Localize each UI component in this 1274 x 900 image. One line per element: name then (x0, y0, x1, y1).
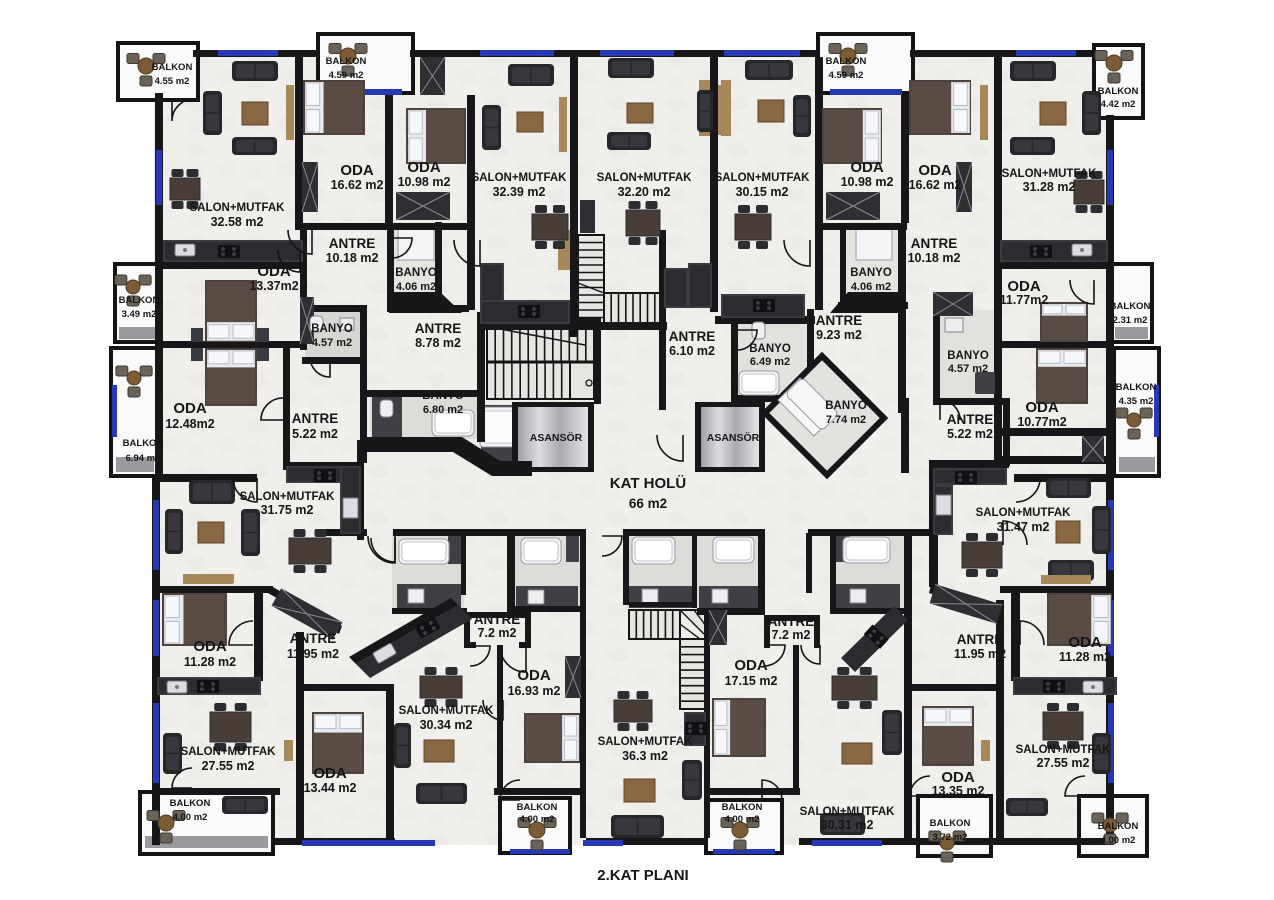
svg-text:6.10 m2: 6.10 m2 (669, 344, 715, 358)
svg-text:SALON+MUTFAK: SALON+MUTFAK (976, 507, 1072, 519)
svg-text:31.75 m2: 31.75 m2 (261, 503, 314, 517)
svg-text:BALKON: BALKON (119, 295, 160, 306)
svg-text:4.59 m2: 4.59 m2 (329, 70, 364, 81)
svg-text:10.18 m2: 10.18 m2 (908, 251, 961, 265)
svg-text:ANTRE: ANTRE (474, 612, 521, 627)
svg-text:ANTRE: ANTRE (957, 632, 1004, 647)
svg-text:11.95 m2: 11.95 m2 (954, 647, 1006, 661)
svg-text:SALON+MUTFAK: SALON+MUTFAK (597, 172, 693, 184)
svg-text:BALKON: BALKON (517, 802, 558, 813)
svg-text:6.94 m2: 6.94 m2 (126, 453, 161, 464)
svg-text:ODA: ODA (850, 159, 884, 176)
svg-text:ANTRE: ANTRE (768, 614, 815, 629)
svg-text:9.23 m2: 9.23 m2 (816, 328, 862, 342)
svg-text:4.57 m2: 4.57 m2 (948, 363, 988, 375)
svg-text:13.44 m2: 13.44 m2 (304, 781, 357, 795)
svg-text:66 m2: 66 m2 (629, 496, 667, 511)
svg-text:8.78 m2: 8.78 m2 (415, 336, 461, 350)
svg-text:ODA: ODA (1068, 634, 1102, 651)
svg-text:30.15 m2: 30.15 m2 (736, 185, 789, 199)
svg-text:4.00 m2: 4.00 m2 (725, 814, 760, 825)
svg-text:16.93 m2: 16.93 m2 (508, 684, 561, 698)
svg-text:11.28 m2: 11.28 m2 (1059, 650, 1111, 664)
svg-text:10.98 m2: 10.98 m2 (841, 175, 894, 189)
svg-text:SALON+MUTFAK: SALON+MUTFAK (190, 202, 286, 214)
svg-text:ASANSÖR: ASANSÖR (530, 431, 583, 444)
svg-text:BANYO: BANYO (395, 267, 437, 279)
svg-text:4.06 m2: 4.06 m2 (851, 281, 891, 293)
svg-text:10.77m2: 10.77m2 (1017, 415, 1066, 429)
svg-text:BANYO: BANYO (947, 350, 989, 362)
svg-text:16.62 m2: 16.62 m2 (909, 178, 962, 192)
svg-text:17.15 m2: 17.15 m2 (725, 674, 778, 688)
svg-text:3.72 m2: 3.72 m2 (933, 832, 968, 843)
svg-text:7.2 m2: 7.2 m2 (478, 626, 517, 640)
svg-text:36.3 m2: 36.3 m2 (622, 749, 668, 763)
svg-text:7.74 m2: 7.74 m2 (826, 414, 866, 426)
svg-text:ANTRE: ANTRE (947, 412, 994, 427)
svg-text:BALKON: BALKON (1098, 821, 1139, 832)
svg-text:11.28 m2: 11.28 m2 (184, 655, 236, 669)
svg-text:7.2 m2: 7.2 m2 (772, 628, 811, 642)
svg-text:4.00 m2: 4.00 m2 (1101, 835, 1136, 846)
svg-text:BANYO: BANYO (850, 267, 892, 279)
svg-text:4.35 m2: 4.35 m2 (1119, 396, 1154, 407)
svg-text:SALON+MUTFAK: SALON+MUTFAK (1016, 744, 1112, 756)
svg-text:SALON+MUTFAK: SALON+MUTFAK (715, 172, 811, 184)
svg-text:SALON+MUTFAK: SALON+MUTFAK (181, 746, 277, 758)
svg-text:31.47 m2: 31.47 m2 (997, 520, 1050, 534)
svg-text:ODA: ODA (340, 162, 374, 179)
svg-text:ODA: ODA (193, 638, 227, 655)
svg-text:30.31 m2: 30.31 m2 (821, 818, 874, 832)
svg-text:ASANSÖR: ASANSÖR (707, 431, 760, 444)
svg-text:SALON+MUTFAK: SALON+MUTFAK (399, 705, 495, 717)
svg-text:BALKON: BALKON (1116, 382, 1157, 393)
svg-text:SALON+MUTFAK: SALON+MUTFAK (800, 806, 896, 818)
svg-text:ANTRE: ANTRE (290, 631, 337, 646)
svg-text:2.KAT PLANI: 2.KAT PLANI (597, 867, 688, 884)
svg-text:12.48m2: 12.48m2 (165, 417, 214, 431)
svg-text:ODA: ODA (734, 657, 768, 674)
svg-text:ODA: ODA (1025, 399, 1059, 416)
svg-text:BALKON: BALKON (123, 438, 164, 449)
svg-text:13.37m2: 13.37m2 (249, 279, 298, 293)
svg-text:BALKON: BALKON (1110, 301, 1151, 312)
svg-text:6.80 m2: 6.80 m2 (423, 404, 463, 416)
svg-text:BALKON: BALKON (826, 56, 867, 67)
svg-text:32.20 m2: 32.20 m2 (618, 185, 671, 199)
svg-text:SALON+MUTFAK: SALON+MUTFAK (472, 172, 568, 184)
svg-text:32.58 m2: 32.58 m2 (211, 215, 264, 229)
svg-text:ANTRE: ANTRE (911, 236, 958, 251)
svg-text:BALKON: BALKON (326, 56, 367, 67)
svg-text:27.55 m2: 27.55 m2 (1037, 756, 1090, 770)
svg-text:10.18 m2: 10.18 m2 (326, 251, 379, 265)
svg-text:16.62 m2: 16.62 m2 (331, 178, 384, 192)
svg-text:BANYO: BANYO (311, 323, 353, 335)
svg-text:BALKON: BALKON (152, 62, 193, 73)
svg-text:BALKON: BALKON (722, 802, 763, 813)
svg-text:ANTRE: ANTRE (292, 411, 339, 426)
svg-text:ODA: ODA (313, 765, 347, 782)
svg-text:4.57 m2: 4.57 m2 (312, 337, 352, 349)
svg-text:ANTRE: ANTRE (669, 329, 716, 344)
svg-text:4.42 m2: 4.42 m2 (1101, 99, 1136, 110)
svg-text:13.35 m2: 13.35 m2 (932, 784, 985, 798)
svg-text:ODA: ODA (173, 400, 207, 417)
svg-text:30.34 m2: 30.34 m2 (420, 718, 473, 732)
svg-text:SALON+MUTFAK: SALON+MUTFAK (240, 491, 336, 503)
svg-text:BALKON: BALKON (1098, 86, 1139, 97)
svg-text:ODA: ODA (517, 667, 551, 684)
svg-text:4.00 m2: 4.00 m2 (173, 812, 208, 823)
svg-text:32.39 m2: 32.39 m2 (493, 185, 546, 199)
svg-text:11.77m2: 11.77m2 (1000, 293, 1049, 307)
svg-text:5.22 m2: 5.22 m2 (947, 427, 993, 441)
svg-text:BALKON: BALKON (930, 818, 971, 829)
svg-text:ODA: ODA (918, 162, 952, 179)
svg-text:ANTRE: ANTRE (415, 321, 462, 336)
svg-text:6.49 m2: 6.49 m2 (750, 356, 790, 368)
svg-text:BALKON: BALKON (170, 798, 211, 809)
svg-text:BANYO: BANYO (422, 390, 464, 402)
svg-text:SALON+MUTFAK: SALON+MUTFAK (598, 736, 694, 748)
svg-text:4.55 m2: 4.55 m2 (155, 76, 190, 87)
svg-text:5.22 m2: 5.22 m2 (292, 427, 338, 441)
svg-text:4.00 m2: 4.00 m2 (520, 814, 555, 825)
svg-text:KAT HOLÜ: KAT HOLÜ (610, 475, 686, 492)
svg-text:BANYO: BANYO (749, 343, 791, 355)
svg-text:SALON+MUTFAK: SALON+MUTFAK (1002, 168, 1098, 180)
svg-text:BANYO: BANYO (825, 400, 867, 412)
svg-text:31.28 m2: 31.28 m2 (1023, 180, 1076, 194)
svg-text:ANTRE: ANTRE (816, 313, 863, 328)
svg-text:27.55 m2: 27.55 m2 (202, 759, 255, 773)
svg-text:11.95 m2: 11.95 m2 (287, 647, 339, 661)
svg-text:ODA: ODA (407, 159, 441, 176)
svg-text:ANTRE: ANTRE (329, 236, 376, 251)
svg-text:ODA: ODA (257, 263, 291, 280)
svg-text:4.06 m2: 4.06 m2 (396, 281, 436, 293)
svg-text:3.49 m2: 3.49 m2 (122, 309, 157, 320)
svg-text:10.98 m2: 10.98 m2 (398, 175, 451, 189)
svg-text:4.59 m2: 4.59 m2 (829, 70, 864, 81)
svg-text:2.31 m2: 2.31 m2 (1113, 315, 1148, 326)
